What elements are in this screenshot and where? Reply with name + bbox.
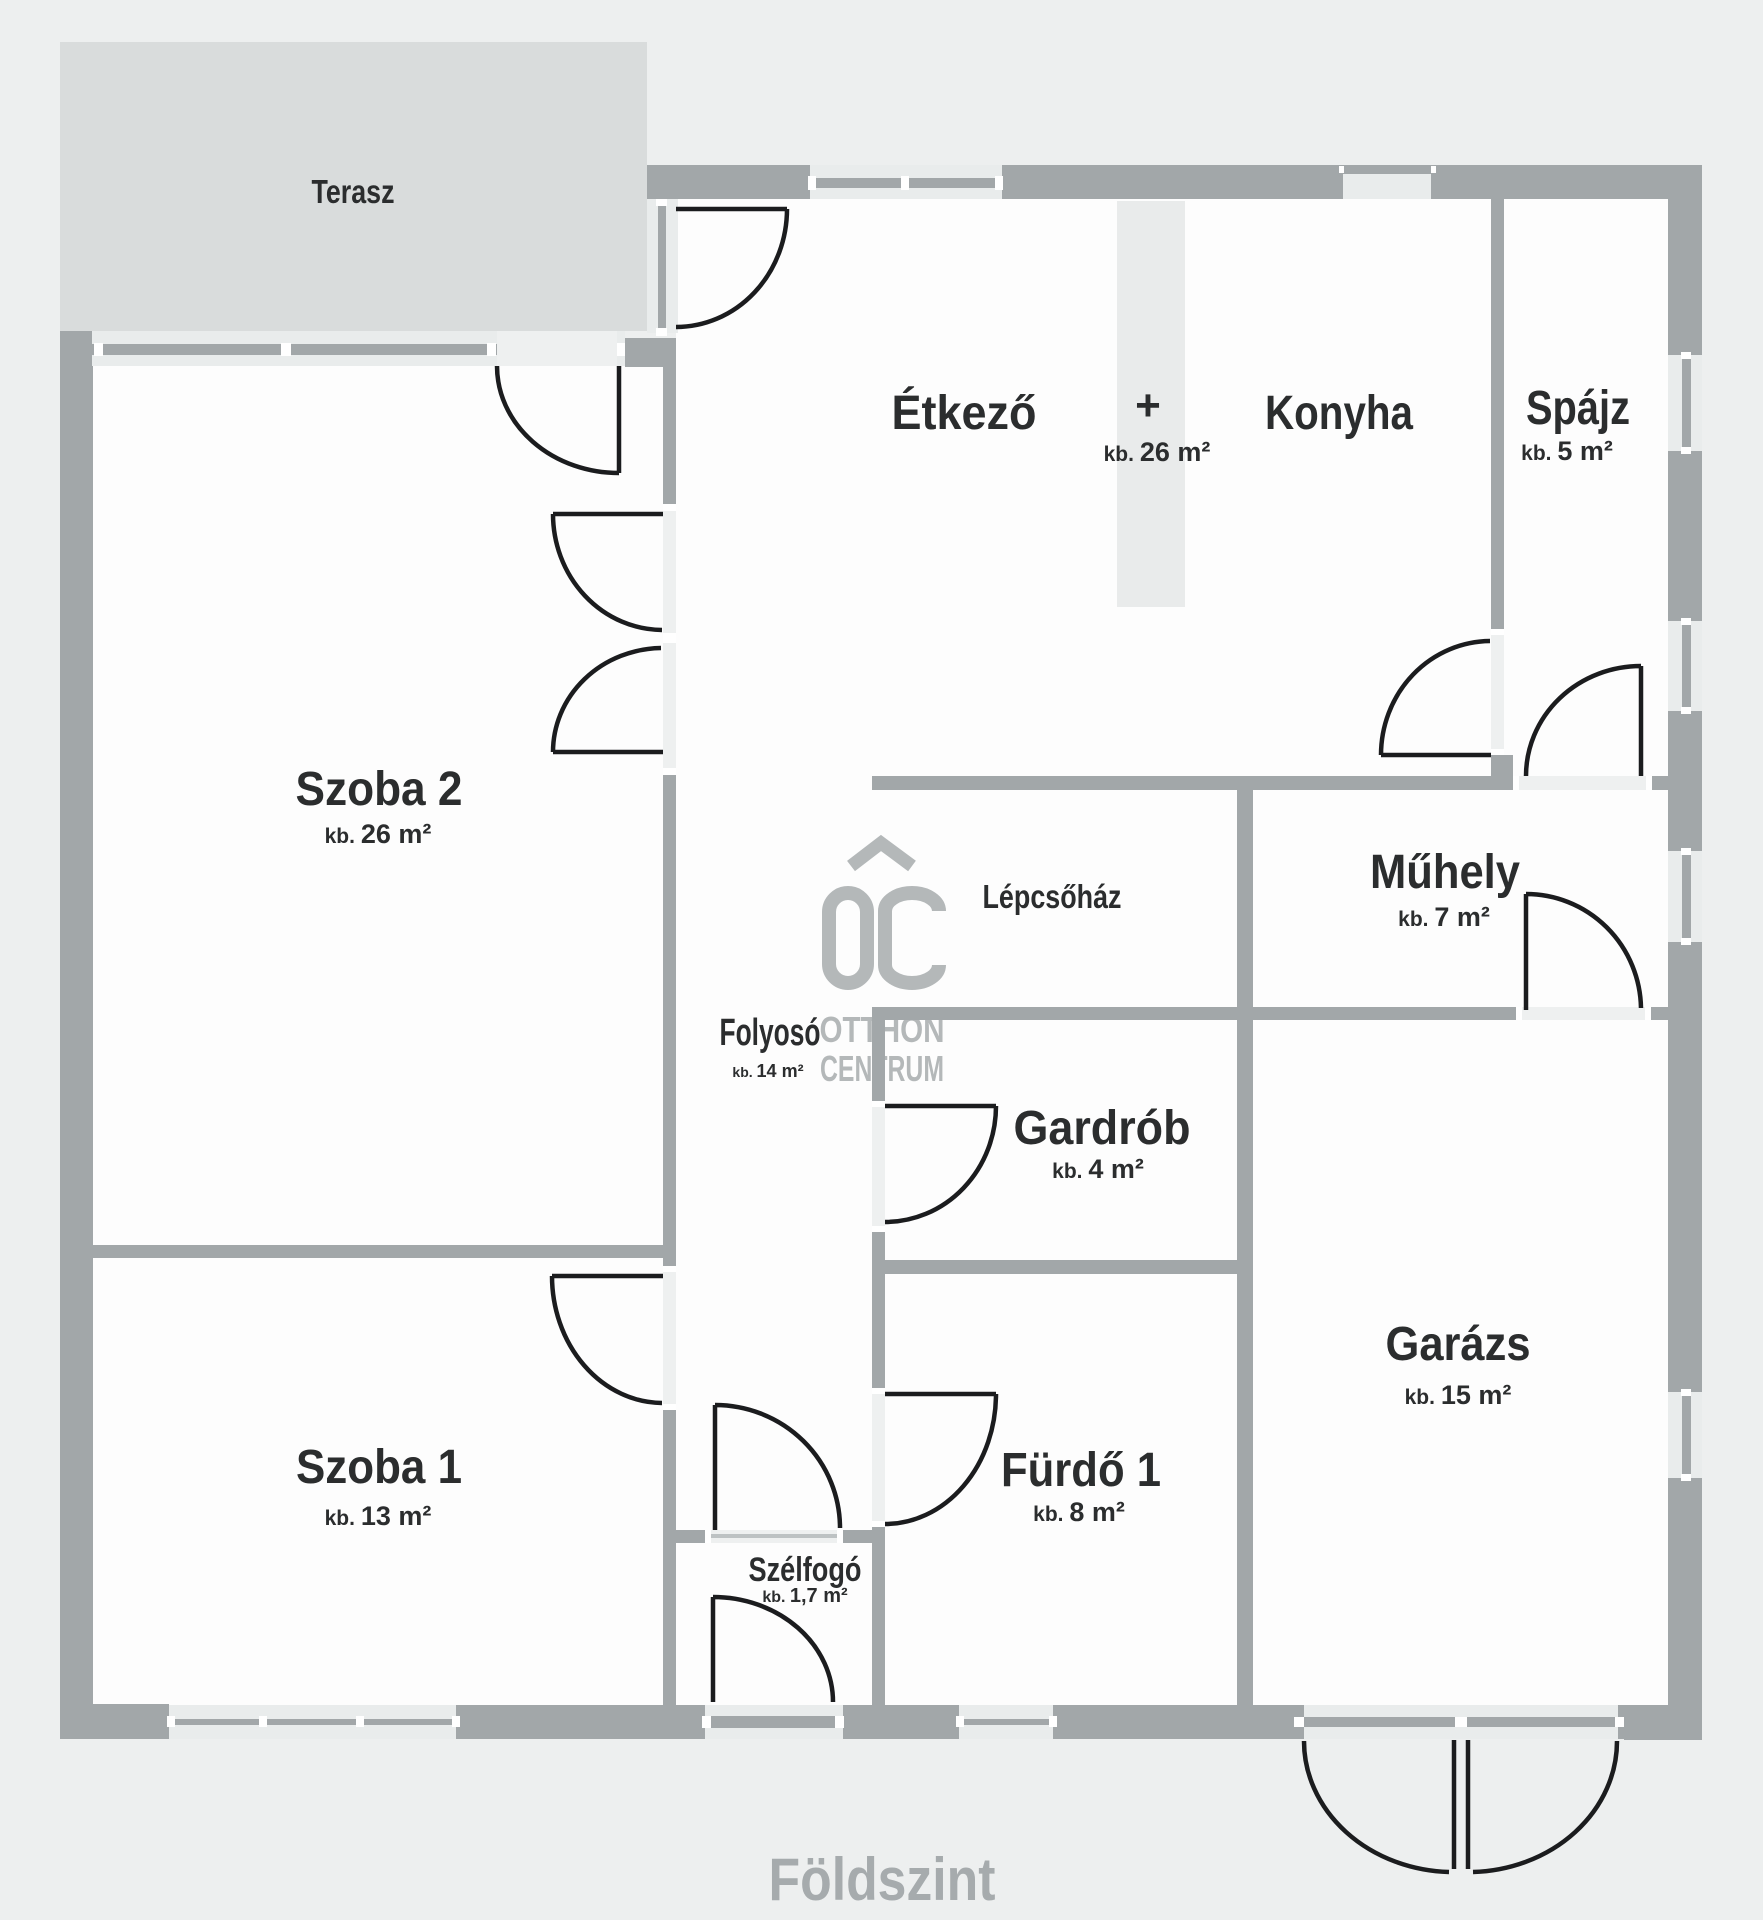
svg-text:Konyha: Konyha bbox=[1265, 387, 1413, 440]
svg-text:Szoba 2: Szoba 2 bbox=[296, 763, 463, 816]
svg-text:Spájz: Spájz bbox=[1526, 382, 1630, 435]
svg-text:Terasz: Terasz bbox=[312, 173, 395, 210]
svg-text:kb. 14 m²: kb. 14 m² bbox=[732, 1061, 803, 1081]
svg-text:Szélfogó: Szélfogó bbox=[749, 1551, 862, 1589]
svg-text:Folyosó: Folyosó bbox=[720, 1012, 821, 1054]
svg-text:kb. 1,7 m²: kb. 1,7 m² bbox=[762, 1585, 848, 1607]
svg-text:Szoba 1: Szoba 1 bbox=[296, 1441, 462, 1494]
svg-text:Földszint: Földszint bbox=[769, 1846, 996, 1913]
svg-text:+: + bbox=[1135, 381, 1161, 430]
svg-text:Lépcsőház: Lépcsőház bbox=[983, 878, 1122, 915]
svg-text:Műhely: Műhely bbox=[1370, 846, 1520, 899]
svg-text:Garázs: Garázs bbox=[1386, 1318, 1531, 1371]
svg-text:Fürdő 1: Fürdő 1 bbox=[1001, 1444, 1161, 1497]
svg-text:Gardrób: Gardrób bbox=[1014, 1102, 1191, 1155]
svg-text:Étkező: Étkező bbox=[892, 386, 1037, 440]
